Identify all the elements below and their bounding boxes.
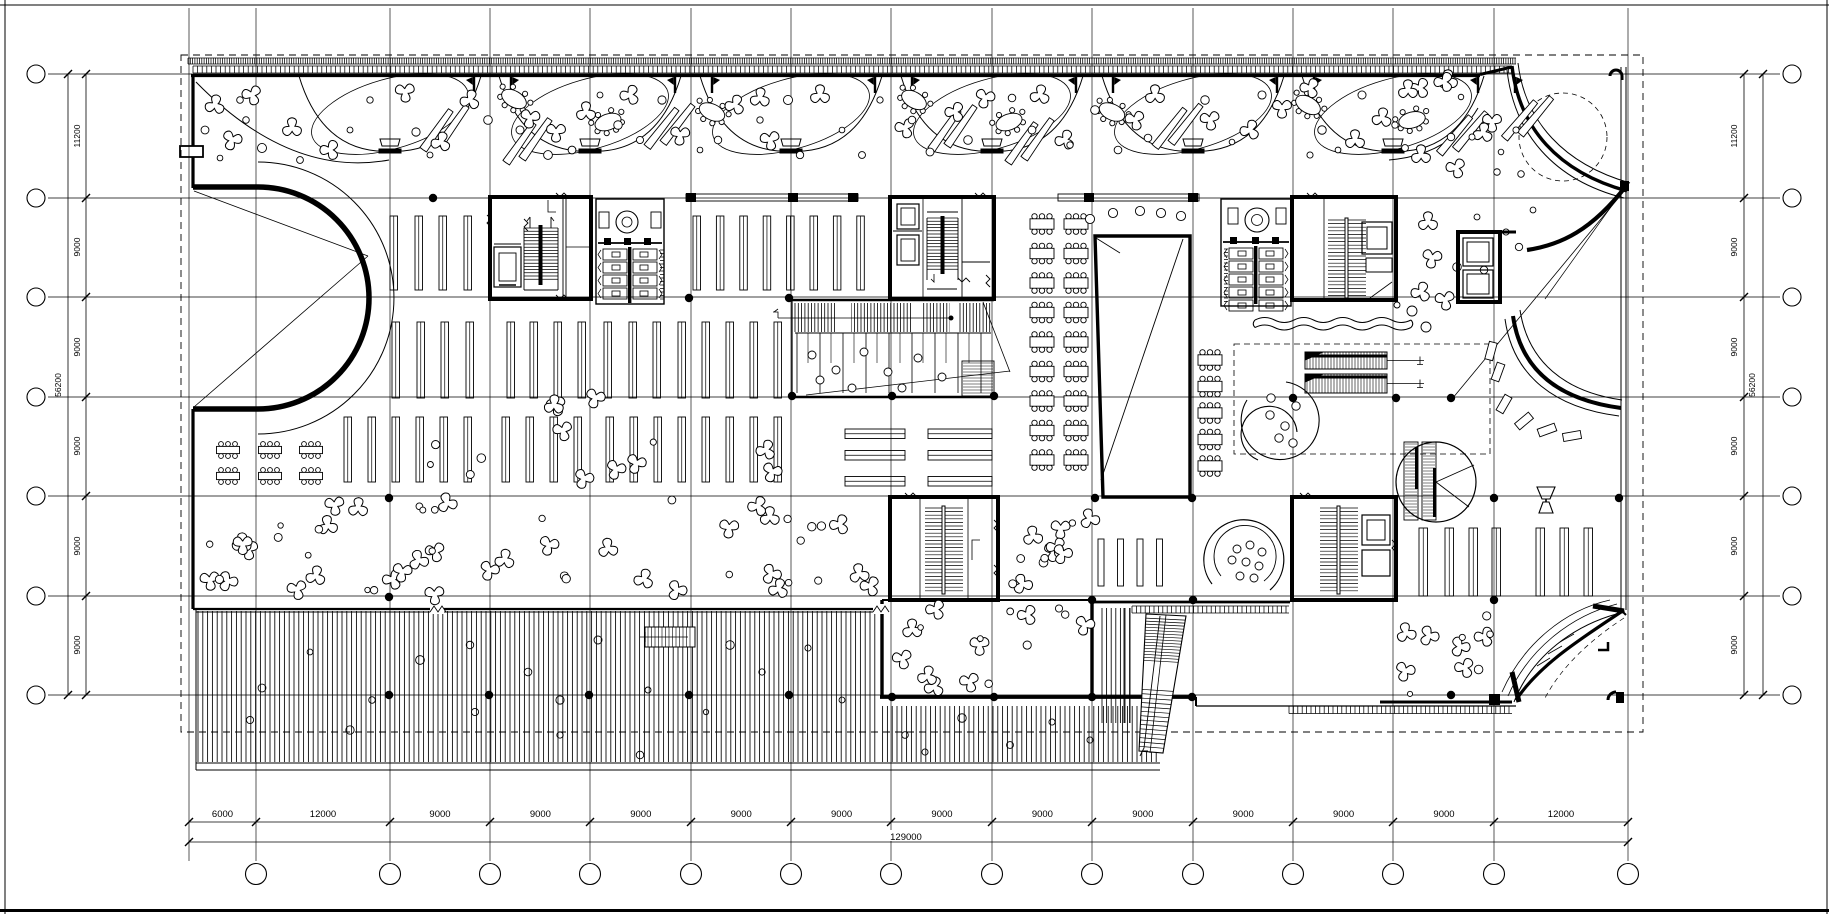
svg-text:12000: 12000 [1548,809,1574,820]
svg-text:9000: 9000 [530,809,551,820]
svg-text:11200: 11200 [1729,124,1739,147]
svg-text:9000: 9000 [72,635,82,654]
svg-text:9000: 9000 [1729,436,1739,455]
svg-text:9000: 9000 [1729,237,1739,256]
svg-text:9000: 9000 [1132,809,1153,820]
svg-text:11200: 11200 [72,124,82,147]
svg-text:9000: 9000 [1433,809,1454,820]
svg-text:9000: 9000 [72,436,82,455]
svg-text:129000: 129000 [890,832,922,843]
svg-text:6000: 6000 [212,809,233,820]
svg-text:56200: 56200 [1747,373,1757,397]
svg-text:56200: 56200 [53,373,63,397]
svg-text:9000: 9000 [72,237,82,256]
svg-text:9000: 9000 [72,536,82,555]
svg-text:9000: 9000 [72,337,82,356]
svg-text:9000: 9000 [1729,536,1739,555]
svg-text:9000: 9000 [630,809,651,820]
svg-text:9000: 9000 [931,809,952,820]
svg-text:9000: 9000 [731,809,752,820]
svg-text:9000: 9000 [429,809,450,820]
svg-text:9000: 9000 [831,809,852,820]
svg-text:9000: 9000 [1032,809,1053,820]
svg-text:9000: 9000 [1729,337,1739,356]
svg-text:9000: 9000 [1233,809,1254,820]
svg-text:9000: 9000 [1729,635,1739,654]
svg-text:12000: 12000 [310,809,336,820]
svg-text:9000: 9000 [1333,809,1354,820]
